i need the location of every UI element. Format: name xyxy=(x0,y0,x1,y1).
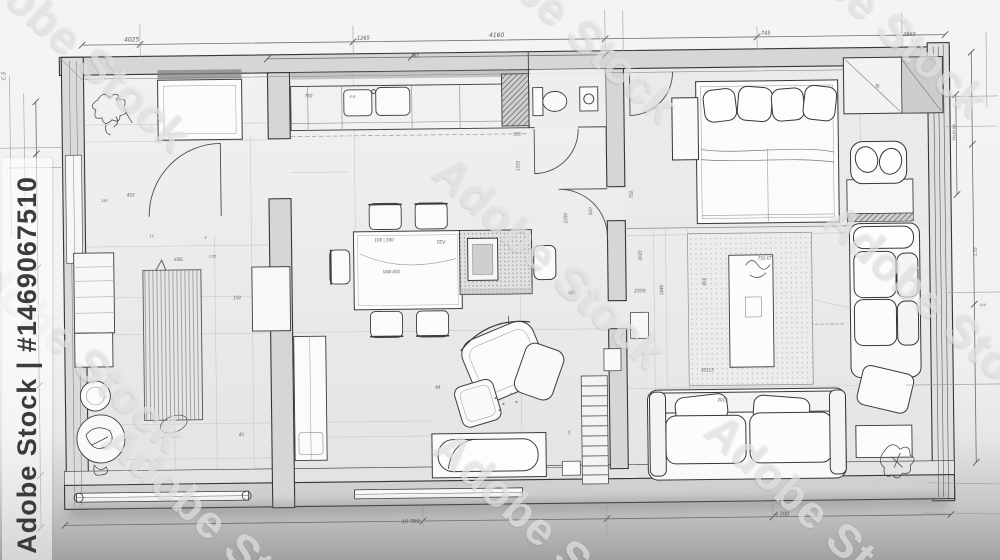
sketch-annotation: 750 KT xyxy=(758,256,773,261)
stove-hatch xyxy=(501,74,529,126)
floor-plan-sketch: 4025126541607452950C.564702457504b452150… xyxy=(0,0,1000,560)
sketch-annotation: 45 xyxy=(239,432,245,437)
partition-wall-right-b xyxy=(607,221,626,301)
bedroom-armchair xyxy=(850,141,907,184)
corner-side-table xyxy=(856,425,912,458)
sketch-annotation: 4160 xyxy=(489,32,505,39)
sketch-annotation: 745 xyxy=(761,31,771,37)
sketch-annotation: 100 | 300 xyxy=(374,237,394,242)
sofa-back-cushion xyxy=(897,253,919,297)
partition-wall-left-upper xyxy=(267,73,290,139)
floorplan-image: 4025126541607452950C.564702457504b452150… xyxy=(0,0,1000,560)
sketch-annotation: 150 xyxy=(233,295,241,300)
kitchen-sink-basin xyxy=(376,87,410,115)
dining-table xyxy=(353,231,462,310)
cabinet-shadow xyxy=(157,69,241,79)
wardrobe-top-left xyxy=(158,79,243,140)
dimension-line-bottom xyxy=(65,515,951,526)
sofa-horizontal xyxy=(647,388,846,480)
sketch-annotation: 1.65 xyxy=(209,255,218,259)
round-armchair xyxy=(77,415,126,464)
sofa-seat-cushion xyxy=(854,251,897,298)
sketch-annotation: 750 xyxy=(305,93,313,98)
sketch-annotation: TELEF.DA xyxy=(952,124,956,141)
sketch-annotation: C.5 xyxy=(1,72,7,80)
sketch-annotation: 1840 xyxy=(659,284,664,295)
sketch-annotation: VAN 450 xyxy=(383,269,401,274)
round-stool xyxy=(80,381,110,411)
stock-id-band: Adobe Stock | #1469067510 xyxy=(2,158,52,560)
single-bed-striped xyxy=(143,260,203,437)
sofa-back-cushion xyxy=(897,301,919,345)
sideboard-cabinet xyxy=(252,267,291,331)
sketch-annotation: 10 700 xyxy=(402,519,420,525)
sofa-seat-cushion xyxy=(750,412,833,463)
sketch-annotation: 11 xyxy=(149,234,154,238)
nightstand xyxy=(672,98,699,160)
wash-basin xyxy=(580,87,598,111)
pillow xyxy=(702,84,838,123)
sketch-annotation: 245 xyxy=(411,53,419,58)
dimension-line-top xyxy=(82,35,945,46)
sketch-annotation: 324 xyxy=(568,290,576,295)
sofa-seat-cushion xyxy=(666,415,747,464)
sofa-armrest xyxy=(649,392,666,476)
sketch-annotation: 4 700 xyxy=(775,512,789,518)
sketch-annotation: 150 xyxy=(101,199,109,203)
dimension-line-right-inner xyxy=(956,94,957,194)
sketch-annotation: 2350 xyxy=(634,288,646,294)
sofa-armrest xyxy=(829,390,846,474)
toilet-tank xyxy=(533,88,543,116)
partition-wall-right-a xyxy=(605,69,624,187)
small-side-box xyxy=(562,461,580,475)
sketch-annotation: 44 xyxy=(435,385,441,390)
sketch-annotation: 310 xyxy=(979,303,987,307)
sketch-annotation: 2350 xyxy=(563,213,568,224)
stock-id-text: Adobe Stock | #1469067510 xyxy=(14,172,41,560)
sketch-annotation: TEV xyxy=(437,240,447,246)
sketch-annotation: 4025 xyxy=(124,36,140,43)
sketch-annotation: 20113 xyxy=(701,367,714,372)
partition-wall-left-lower xyxy=(269,199,295,508)
sketch-annotation: 2013 xyxy=(717,397,728,402)
sketch-annotation: 555 xyxy=(513,132,521,137)
sketch-annotation: V.BG xyxy=(174,257,183,262)
sketch-annotation: 750 xyxy=(629,190,634,198)
sketch-annotation: 2950 xyxy=(903,32,916,38)
sketch-annotation: 1265 xyxy=(357,36,370,42)
kitchen-sink-basin xyxy=(344,90,372,116)
sofa-vertical xyxy=(849,223,921,416)
wall-shelf-cabinet xyxy=(74,253,115,333)
sketch-annotation: E.B xyxy=(350,95,356,99)
coffee-table xyxy=(729,255,774,368)
sketch-annotation: 2025 xyxy=(638,250,643,261)
tv-console xyxy=(847,179,913,214)
sofa-armrest xyxy=(853,226,913,249)
toilet-bowl xyxy=(543,91,567,111)
sketch-annotation: 950 xyxy=(702,277,707,285)
sketch-annotation: 920 xyxy=(588,207,593,215)
sofa-seat-cushion xyxy=(854,299,897,346)
bar-stool xyxy=(534,245,556,279)
low-cabinet xyxy=(75,333,113,367)
sketch-annotation: 4b xyxy=(116,97,122,102)
sketch-annotation: 1.55 xyxy=(973,247,978,256)
sketch-annotation: 452 xyxy=(127,193,135,198)
partition-box xyxy=(604,349,621,371)
wall-shelf-box xyxy=(630,312,648,338)
sketch-annotation: 1555 xyxy=(516,160,521,171)
sketch-annotation: 4 xyxy=(204,236,206,240)
